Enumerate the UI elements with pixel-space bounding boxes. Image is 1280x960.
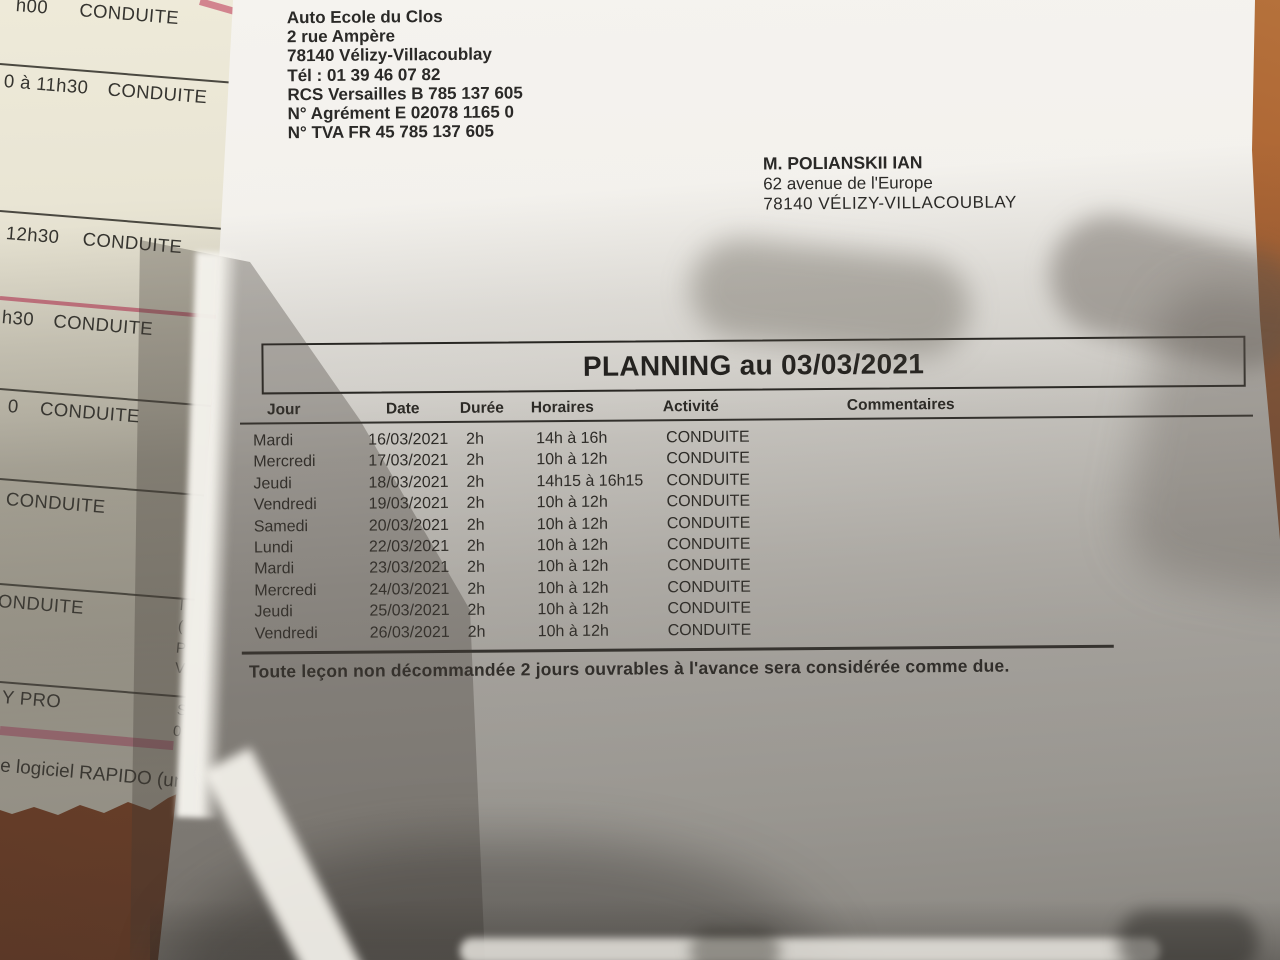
under-time: 0 à 11h30 <box>3 70 89 98</box>
cell-jour: Jeudi <box>254 601 369 623</box>
cell-jour: Lundi <box>254 537 369 559</box>
edge-fragment: ( <box>177 618 183 635</box>
cell-jour: Mercredi <box>253 451 368 473</box>
cell-activite: CONDUITE <box>667 554 853 577</box>
cell-horaires: 10h à 12h <box>538 620 668 642</box>
school-phone: Tél : 01 39 46 07 82 <box>287 64 522 85</box>
under-row: 0 CONDUITE <box>7 395 140 428</box>
under-bottom-text: le logiciel RAPIDO (un <box>0 755 185 793</box>
school-address-block: Auto Ecole du Clos 2 rue Ampère 78140 Vé… <box>287 6 523 142</box>
under-time: h30 <box>1 306 35 330</box>
cell-jour: Jeudi <box>253 472 368 494</box>
edge-fragment: V <box>174 660 185 678</box>
cell-duree: 2h <box>466 428 536 450</box>
cell-jour: Mardi <box>253 430 368 452</box>
under-activity: CONDUITE <box>39 398 140 427</box>
under-row: 0 à 11h30 CONDUITE <box>3 70 208 108</box>
cell-duree: 2h <box>467 535 537 557</box>
under-time: h00 <box>15 0 49 18</box>
cell-horaires: 10h à 12h <box>537 491 667 513</box>
cell-date: 18/03/2021 <box>368 472 466 494</box>
col-header-commentaires: Commentaires <box>847 396 955 415</box>
table-bottom-rule <box>242 645 1114 654</box>
school-tva: N° TVA FR 45 785 137 605 <box>288 122 523 143</box>
under-activity: ONDUITE <box>0 590 85 618</box>
school-rcs: RCS Versailles B 785 137 605 <box>287 83 522 104</box>
under-activity: CONDUITE <box>5 488 106 517</box>
photo-of-planning-document: h00 CONDUITE 0 à 11h30 CONDUITE 12h30 CO… <box>0 0 1280 960</box>
school-street: 2 rue Ampère <box>287 26 522 47</box>
cell-horaires: 10h à 12h <box>537 513 667 535</box>
cell-horaires: 10h à 12h <box>537 534 667 556</box>
cell-horaires: 10h à 12h <box>537 598 667 620</box>
cell-activite: CONDUITE <box>666 469 852 492</box>
cell-activite: CONDUITE <box>667 597 853 620</box>
planning-title: PLANNING au 03/03/2021 <box>583 348 924 383</box>
recipient-city: 78140 VÉLIZY-VILLACOUBLAY <box>763 193 1017 215</box>
under-activity: CONDUITE <box>79 0 180 28</box>
cell-duree: 2h <box>467 492 537 514</box>
under-row: ONDUITE <box>0 590 85 619</box>
cell-date: 24/03/2021 <box>369 579 467 601</box>
cell-date: 25/03/2021 <box>369 600 467 622</box>
edge-fragment: 0 <box>172 723 182 741</box>
cell-commentaires <box>854 615 1255 640</box>
under-row: Y PRO <box>1 686 62 713</box>
cell-activite: CONDUITE <box>667 576 853 599</box>
recipient-street: 62 avenue de l'Europe <box>763 172 1017 194</box>
under-activity: CONDUITE <box>82 228 183 257</box>
school-name: Auto Ecole du Clos <box>287 6 522 27</box>
school-agrement: N° Agrément E 02078 1165 0 <box>288 102 523 123</box>
cell-date: 19/03/2021 <box>369 493 467 515</box>
planning-title-box: PLANNING au 03/03/2021 <box>261 336 1245 395</box>
under-activity: Y PRO <box>1 686 62 712</box>
under-row: 12h30 CONDUITE <box>5 222 183 258</box>
cell-horaires: 14h15 à 16h15 <box>536 470 666 492</box>
edge-fragment: P <box>175 640 186 658</box>
cell-date: 22/03/2021 <box>369 536 467 558</box>
under-activity: CONDUITE <box>107 78 208 107</box>
recipient-block: M. POLIANSKII IAN 62 avenue de l'Europe … <box>763 152 1017 215</box>
cell-activite: CONDUITE <box>666 426 852 449</box>
col-header-jour: Jour <box>267 401 301 419</box>
cell-duree: 2h <box>467 599 537 621</box>
under-row: CONDUITE <box>5 488 106 518</box>
cell-date: 23/03/2021 <box>369 557 467 579</box>
pink-bar <box>0 726 174 750</box>
cell-jour: Vendredi <box>254 494 369 516</box>
cell-jour: Samedi <box>254 515 369 537</box>
cell-date: 16/03/2021 <box>368 429 466 451</box>
cell-duree: 2h <box>467 514 537 536</box>
cell-duree: 2h <box>468 621 538 643</box>
cell-jour: Vendredi <box>255 622 370 644</box>
cancellation-footnote: Toute leçon non décommandée 2 jours ouvr… <box>249 656 1010 683</box>
cell-activite: CONDUITE <box>668 618 854 641</box>
cell-activite: CONDUITE <box>667 490 853 513</box>
under-row: h00 CONDUITE <box>15 0 180 29</box>
under-activity: CONDUITE <box>53 310 154 339</box>
col-header-horaires: Horaires <box>531 399 594 417</box>
cell-activite: CONDUITE <box>666 447 852 470</box>
col-header-duree: Durée <box>460 400 504 418</box>
cell-date: 20/03/2021 <box>369 514 467 536</box>
cell-horaires: 10h à 12h <box>536 449 666 471</box>
cell-horaires: 10h à 12h <box>537 556 667 578</box>
cell-horaires: 14h à 16h <box>536 427 666 449</box>
cell-jour: Mardi <box>254 558 369 580</box>
cell-duree: 2h <box>466 450 536 472</box>
cell-activite: CONDUITE <box>667 533 853 556</box>
under-time: 12h30 <box>5 222 60 247</box>
planning-table-rows: Mardi 16/03/2021 2h 14h à 16h CONDUITE M… <box>240 423 1255 645</box>
col-header-activite: Activité <box>663 398 719 416</box>
cell-duree: 2h <box>467 557 537 579</box>
cell-date: 17/03/2021 <box>368 450 466 472</box>
col-header-date: Date <box>386 400 420 418</box>
cell-duree: 2h <box>467 578 537 600</box>
cell-duree: 2h <box>466 471 536 493</box>
edge-fragment: l <box>179 597 184 614</box>
cell-activite: CONDUITE <box>667 511 853 534</box>
school-city: 78140 Vélizy-Villacoublay <box>287 45 522 66</box>
cell-horaires: 10h à 12h <box>537 577 667 599</box>
cell-jour: Mercredi <box>254 579 369 601</box>
cell-date: 26/03/2021 <box>370 621 468 643</box>
under-time: 0 <box>7 395 19 417</box>
recipient-name: M. POLIANSKII IAN <box>763 152 1017 174</box>
